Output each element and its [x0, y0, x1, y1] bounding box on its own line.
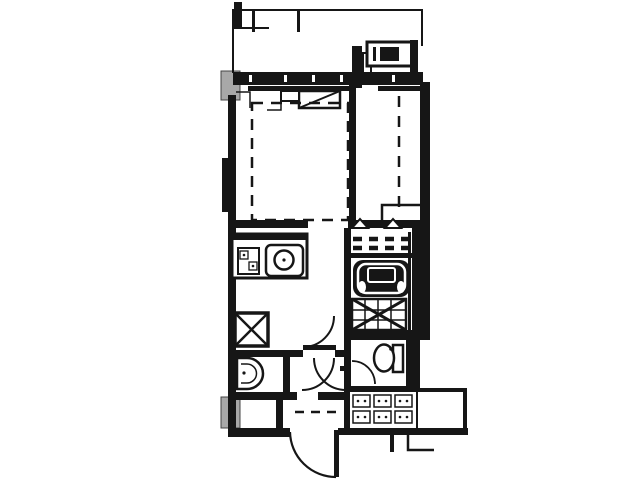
bathtub-icon	[353, 260, 410, 297]
floor-plan-drawing	[0, 0, 640, 480]
bed-dashed-outline	[252, 103, 348, 220]
sliding-window-icon	[233, 72, 423, 91]
kitchen	[232, 234, 307, 278]
side-room	[352, 96, 420, 228]
floor-plan-page	[0, 0, 640, 480]
entrance-door-swing	[290, 430, 339, 477]
shoe-cabinet-icon	[344, 388, 420, 430]
pipe-shaft-x-icon	[235, 313, 268, 346]
kitchen-sink-icon	[266, 245, 303, 276]
crossing-door-swings	[284, 358, 346, 390]
washbasin-icon	[237, 358, 263, 389]
main-room	[236, 91, 348, 220]
bathroom	[351, 232, 412, 332]
kitchen-door-swing	[303, 316, 336, 350]
washroom	[237, 358, 263, 389]
air-conditioner-symbol-icon	[281, 91, 340, 108]
closet-step	[382, 205, 420, 222]
toilet-room	[344, 330, 420, 392]
toilet-icon	[374, 345, 403, 373]
gas-stove-icon	[238, 248, 259, 274]
tiled-floor-hatch	[352, 299, 406, 330]
